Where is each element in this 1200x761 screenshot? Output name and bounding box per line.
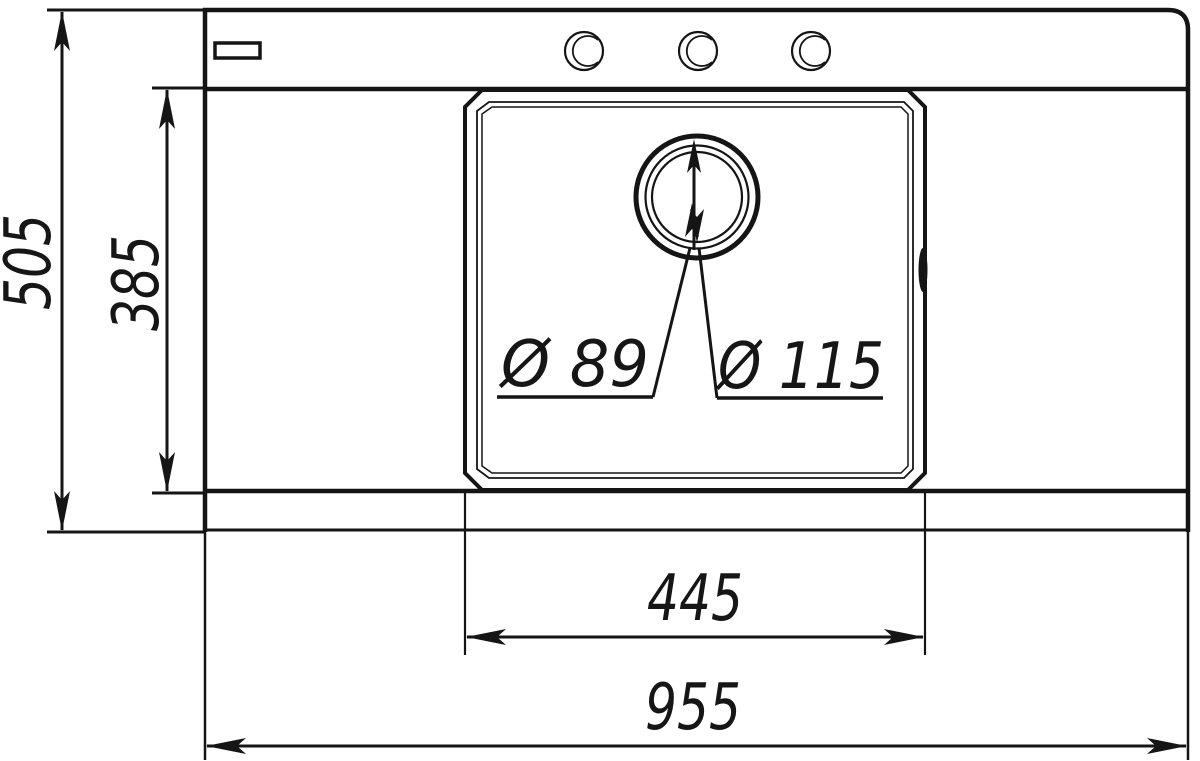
callout-leader-89 — [653, 248, 690, 397]
callout-leader-115 — [699, 248, 717, 398]
faucet-hole-center — [679, 32, 717, 70]
bowl-edge-mark — [919, 248, 928, 292]
faucet-holes — [565, 32, 830, 70]
dim-label-385: 385 — [100, 235, 174, 331]
dim-label-505: 505 — [0, 214, 66, 310]
drawing-canvas: Ø 89 Ø 115 505 385 — [0, 0, 1200, 761]
callout-drain-small: Ø 89 — [497, 248, 690, 402]
dim-label-955: 955 — [645, 671, 741, 745]
drain — [636, 136, 758, 258]
dimension-bowl-depth: 385 — [100, 88, 205, 493]
dimension-bowl-width: 445 — [465, 492, 925, 655]
callout-drain-large: Ø 115 — [699, 248, 884, 404]
dim-label-445: 445 — [647, 562, 743, 636]
drain-small-label: Ø 89 — [498, 328, 649, 402]
overflow-slot — [215, 43, 260, 58]
faucet-hole-right — [792, 32, 830, 70]
sink-dimension-drawing: Ø 89 Ø 115 505 385 — [0, 0, 1200, 761]
drain-large-label: Ø 115 — [715, 330, 884, 404]
faucet-hole-left — [565, 32, 603, 70]
